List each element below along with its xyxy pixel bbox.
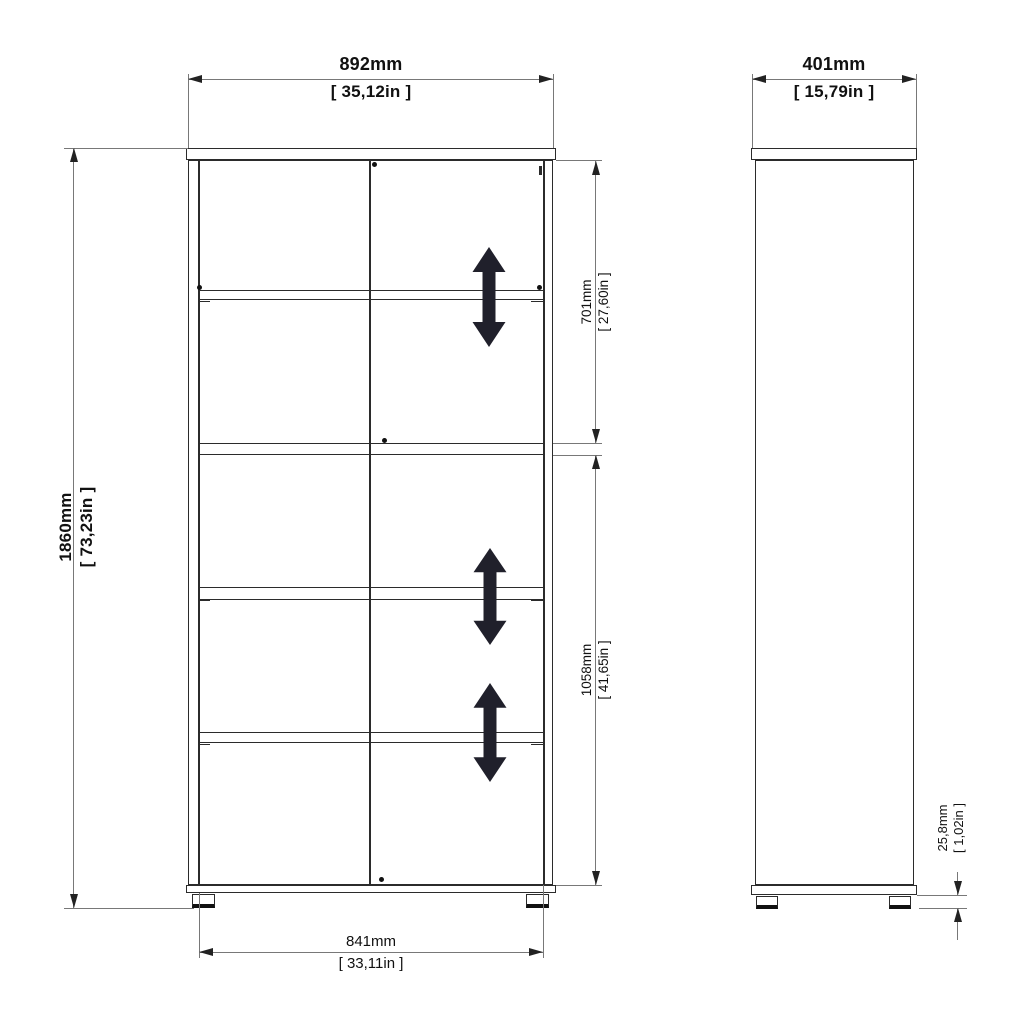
dim-label-mm: 892mm bbox=[271, 54, 471, 75]
cam-fitting-dot bbox=[379, 877, 384, 882]
shelf-position-tick bbox=[198, 744, 210, 745]
dim-arrowhead bbox=[539, 75, 553, 83]
shelf-adjust-arrow-icon bbox=[473, 683, 507, 782]
side-right-foot bbox=[889, 896, 911, 909]
dim-label-mm: 701mm bbox=[579, 280, 596, 325]
shelf-position-tick bbox=[531, 600, 543, 601]
dim-label-mm: 1860mm bbox=[55, 492, 76, 561]
dim-label-in: [ 33,11in ] bbox=[271, 955, 471, 972]
dim-arrowhead bbox=[199, 948, 213, 956]
front-bottom-plinth bbox=[186, 885, 556, 893]
dim-label-in: [ 27,60in ] bbox=[596, 272, 613, 331]
side-left-foot bbox=[756, 896, 778, 909]
extension-line bbox=[188, 74, 189, 148]
side-body-outline bbox=[755, 160, 914, 885]
dim-arrowhead bbox=[188, 75, 202, 83]
front-center-divider bbox=[369, 160, 371, 885]
front-left-panel-inner-line bbox=[198, 160, 200, 885]
fixed-middle-shelf bbox=[198, 443, 543, 455]
shelf-adjust-arrow-icon bbox=[472, 247, 506, 347]
technical-drawing-canvas: 892mm [ 35,12in ] 401mm [ 15,79in ] 1860… bbox=[0, 0, 1024, 1024]
side-bottom-plinth bbox=[751, 885, 917, 895]
dim-label-mm: 1058mm bbox=[579, 644, 596, 697]
dim-label-rotated: 701mm [ 27,60in ] bbox=[578, 242, 614, 362]
dim-label-mm: 841mm bbox=[271, 933, 471, 950]
shelf-position-tick bbox=[198, 600, 210, 601]
dim-arrowhead bbox=[592, 871, 600, 885]
dim-arrowhead bbox=[70, 148, 78, 162]
front-right-panel-inner-line bbox=[543, 160, 545, 885]
dimension-line bbox=[188, 79, 553, 80]
dimension-line bbox=[752, 79, 916, 80]
shelf-position-tick bbox=[531, 744, 543, 745]
dimension-line bbox=[199, 952, 543, 953]
dim-arrowhead bbox=[954, 908, 962, 922]
front-left-foot bbox=[192, 894, 215, 908]
extension-line bbox=[64, 148, 188, 149]
dim-label-in: [ 35,12in ] bbox=[271, 82, 471, 102]
shelf-adjust-arrow-icon bbox=[473, 548, 507, 645]
dim-label-rotated: 1860mm [ 73,23in ] bbox=[54, 447, 98, 607]
shelf-pin-mark bbox=[539, 166, 542, 175]
extension-line bbox=[543, 885, 544, 958]
front-top-board bbox=[186, 148, 556, 160]
dim-label-in: [ 1,02in ] bbox=[951, 803, 967, 853]
extension-line bbox=[556, 885, 602, 886]
front-right-foot bbox=[526, 894, 549, 908]
shelf-position-tick bbox=[198, 301, 210, 302]
extension-line bbox=[553, 74, 554, 148]
dim-arrowhead bbox=[529, 948, 543, 956]
extension-line bbox=[64, 908, 194, 909]
cam-fitting-dot bbox=[537, 285, 542, 290]
dim-label-rotated: 1058mm [ 41,65in ] bbox=[578, 605, 614, 735]
dim-arrowhead bbox=[592, 455, 600, 469]
cam-fitting-dot bbox=[372, 162, 377, 167]
dim-label-in: [ 41,65in ] bbox=[596, 640, 613, 699]
dim-label-rotated: 25,8mm [ 1,02in ] bbox=[934, 778, 968, 878]
cam-fitting-dot bbox=[382, 438, 387, 443]
extension-line bbox=[553, 443, 602, 444]
cam-fitting-dot bbox=[197, 285, 202, 290]
shelf-position-tick bbox=[531, 301, 543, 302]
dim-label-in: [ 15,79in ] bbox=[734, 82, 934, 102]
dim-label-in: [ 73,23in ] bbox=[76, 487, 97, 568]
dim-label-mm: 401mm bbox=[734, 54, 934, 75]
side-top-board bbox=[751, 148, 917, 160]
dim-arrowhead bbox=[70, 894, 78, 908]
dim-arrowhead bbox=[954, 881, 962, 895]
dim-arrowhead bbox=[592, 429, 600, 443]
extension-line bbox=[917, 895, 967, 896]
dim-arrowhead bbox=[592, 161, 600, 175]
dim-label-mm: 25,8mm bbox=[935, 805, 951, 852]
